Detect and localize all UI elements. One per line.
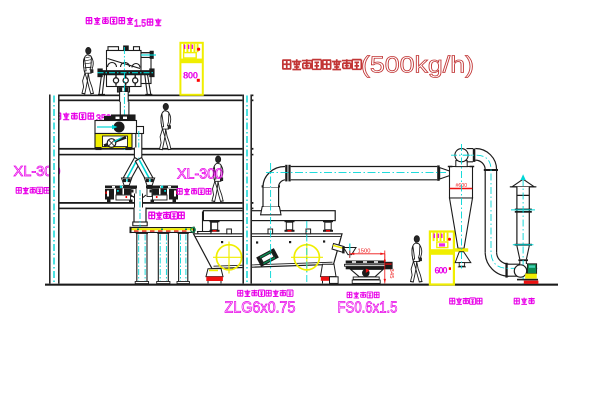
svg-text:1500: 1500: [358, 249, 371, 255]
svg-text:1.5: 1.5: [134, 18, 146, 30]
svg-text:800: 800: [183, 71, 198, 82]
svg-text:600: 600: [435, 266, 448, 276]
svg-text:345: 345: [388, 269, 394, 279]
svg-text:XL-300: XL-300: [177, 166, 223, 183]
svg-text:(500kg/h): (500kg/h): [361, 52, 474, 78]
svg-text:ZLG6x0.75: ZLG6x0.75: [225, 300, 296, 317]
svg-text:FS0.6x1.5: FS0.6x1.5: [338, 300, 398, 317]
